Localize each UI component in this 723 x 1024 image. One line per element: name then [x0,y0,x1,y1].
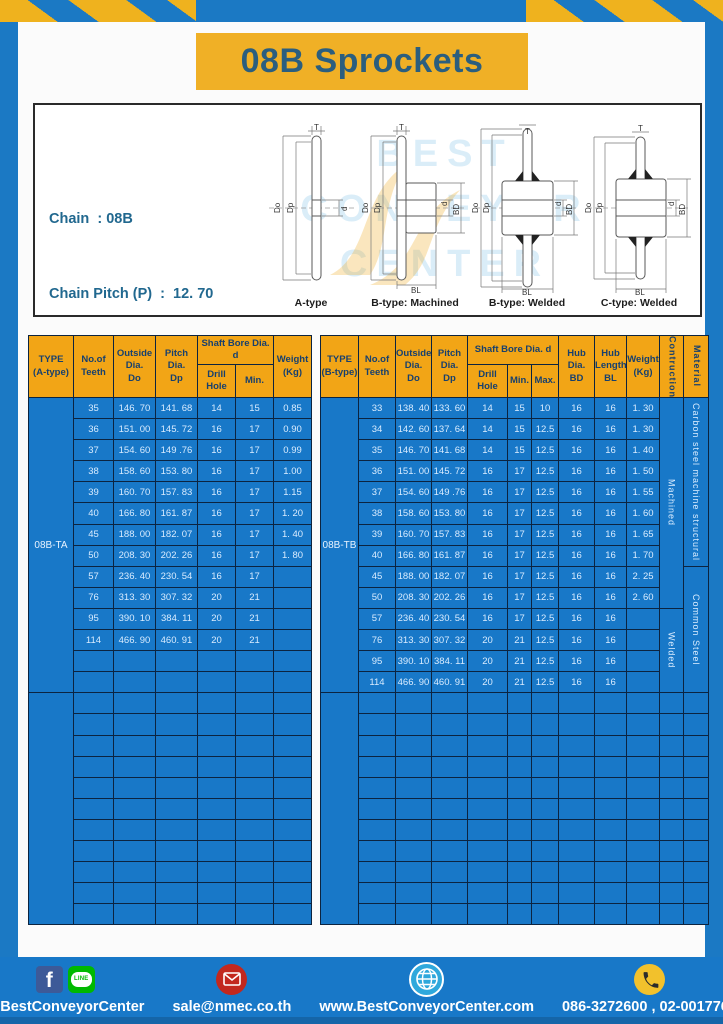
table-cell [114,777,156,798]
table-cell: 114 [74,630,114,651]
table-cell: 14 [468,398,508,419]
table-cell: 20 [198,608,236,629]
table-cell [198,819,236,840]
page-bottom-edge [0,1017,723,1024]
table-row [321,904,709,925]
col-header-min: Min. [508,365,532,398]
table-cell [432,735,468,756]
table-cell [595,756,627,777]
type-cell [321,693,359,925]
table-cell [660,777,684,798]
table-cell [627,756,660,777]
table-cell [156,651,198,672]
table-cell: 16 [198,461,236,482]
table-cell: 2. 25 [627,566,660,587]
table-cell [532,798,559,819]
table-cell [684,862,709,883]
table-cell: 17 [236,482,274,503]
table-cell: 182. 07 [432,566,468,587]
table-cell: 39 [359,524,396,545]
table-cell: 37 [359,482,396,503]
col-header-drill-hole: Drill Hole [468,365,508,398]
table-cell: 95 [359,651,396,672]
table-row: 57236. 40230. 54161712.51616Welded [321,608,709,629]
table-cell [627,798,660,819]
table-cell: 17 [236,545,274,566]
table-cell [156,777,198,798]
table-cell [595,777,627,798]
table-cell [396,714,432,735]
contact-footer: f LINE @BestConveyorCenter sale@nmec.co.… [0,957,723,1024]
table-cell [559,840,595,861]
table-row: 39160. 70157. 83161712.516161. 65 [321,524,709,545]
table-cell [156,714,198,735]
svg-text:BL: BL [635,288,645,295]
table-cell [74,819,114,840]
col-header-construction: Contruction [660,336,684,398]
table-cell [74,693,114,714]
table-cell [156,904,198,925]
table-cell [236,756,274,777]
table-cell [274,693,312,714]
table-cell: 1. 60 [627,503,660,524]
col-header-hub-dia: Hub Dia. BD [559,336,595,398]
table-cell [74,651,114,672]
sprocket-section-drawing: T Do Dp d BD BL [583,123,695,295]
table-cell [114,862,156,883]
table-cell: 16 [468,482,508,503]
table-cell: 16 [198,419,236,440]
table-cell: 460. 91 [156,630,198,651]
sprocket-section-drawing: T Do Dp d BD BL [359,123,471,295]
table-cell [627,735,660,756]
globe-icon [409,962,444,997]
table-row: 95390. 10384. 11202112.51616 [321,651,709,672]
table-cell: 158. 60 [114,461,156,482]
table-cell [114,883,156,904]
table-cell: 390. 10 [114,608,156,629]
table-cell [660,862,684,883]
table-cell: 17 [508,608,532,629]
svg-text:Do: Do [361,202,370,213]
table-cell [595,714,627,735]
table-cell: 16 [468,608,508,629]
table-cell [468,714,508,735]
svg-text:BL: BL [522,288,532,295]
table-cell: 14 [198,398,236,419]
table-cell [74,904,114,925]
table-cell [198,756,236,777]
mail-icon [216,964,247,995]
table-cell: 35 [74,398,114,419]
table-cell: 36 [359,461,396,482]
table-cell [359,714,396,735]
table-cell [236,862,274,883]
col-header-material: Material [684,336,709,398]
col-header-shaft-bore: Shaft Bore Dia. d [198,336,274,365]
sprocket-drawings: T Do Dp d A-type T [263,111,694,311]
table-cell [274,862,312,883]
table-cell: 153. 80 [432,503,468,524]
table-cell [274,840,312,861]
table-cell [627,840,660,861]
table-cell: 384. 11 [432,651,468,672]
table-cell [274,566,312,587]
title-banner: 08B Sprockets [196,33,528,90]
table-cell [559,862,595,883]
table-cell [595,819,627,840]
table-cell [532,777,559,798]
table-cell [559,904,595,925]
table-cell: 16 [595,482,627,503]
table-cell [432,714,468,735]
catalog-page: 08B Sprockets BEST CONVEYOR CENTER Chain… [0,0,723,1024]
table-cell: 12.5 [532,461,559,482]
table-cell: 12.5 [532,440,559,461]
table-cell: 38 [359,503,396,524]
table-cell [198,672,236,693]
table-row: 38158. 60153. 80161712.516161. 60 [321,503,709,524]
spec-line: Chain : 08B [49,207,291,232]
table-row [29,693,312,714]
table-cell: 14 [468,440,508,461]
table-cell [396,777,432,798]
table-row: 45188. 00182. 07161712.516162. 25Common … [321,566,709,587]
table-cell: 133. 60 [432,398,468,419]
table-cell: 12.5 [532,545,559,566]
table-cell: 15 [508,398,532,419]
table-cell [396,840,432,861]
table-cell [156,798,198,819]
table-cell: 16 [468,587,508,608]
footer-social: f LINE @BestConveyorCenter [0,961,154,1015]
table-cell: 45 [359,566,396,587]
table-cell [468,840,508,861]
table-cell [74,756,114,777]
table-cell: 12.5 [532,503,559,524]
table-cell: 157. 83 [432,524,468,545]
table-cell: 21 [236,630,274,651]
table-cell [432,777,468,798]
table-cell [684,840,709,861]
table-cell [627,819,660,840]
table-cell [114,904,156,925]
table-cell: 384. 11 [156,608,198,629]
table-cell [532,756,559,777]
table-cell: 154. 60 [396,482,432,503]
phone-numbers: 086-3272600 , 02-0017766 [562,999,723,1015]
table-cell: 16 [198,545,236,566]
table-cell [396,693,432,714]
table-cell [508,819,532,840]
svg-text:BL: BL [411,286,421,295]
table-cell [627,693,660,714]
table-row: 50208. 30202. 26161712.516162. 60 [321,587,709,608]
table-cell [684,693,709,714]
table-cell: Common Steel [684,566,709,693]
table-cell [468,756,508,777]
table-cell: 36 [74,419,114,440]
table-cell: 17 [508,566,532,587]
table-cell [684,777,709,798]
svg-text:Dp: Dp [482,202,491,213]
table-cell: 1. 30 [627,398,660,419]
table-cell [508,862,532,883]
table-cell: 1. 40 [274,524,312,545]
svg-text:Do: Do [584,202,593,213]
table-cell: 76 [359,630,396,651]
table-cell [236,672,274,693]
table-cell: 16 [595,630,627,651]
table-cell: 16 [198,482,236,503]
table-cell [156,735,198,756]
table-cell: 16 [595,419,627,440]
svg-text:T: T [525,127,530,136]
table-cell [74,777,114,798]
drawing-a-type: T Do Dp d A-type [263,111,359,311]
table-row: 08B-TA35146. 70141. 6814150.85 [29,398,312,419]
type-cell [29,693,74,925]
table-cell [236,819,274,840]
table-cell: 202. 26 [156,545,198,566]
table-cell [396,798,432,819]
hazard-stripes-right [526,0,723,22]
svg-text:d: d [440,202,449,206]
table-cell: 38 [74,461,114,482]
col-header-teeth: No.of Teeth [74,336,114,398]
table-cell [74,862,114,883]
table-cell: 236. 40 [114,566,156,587]
table-cell [627,672,660,693]
spec-box: BEST CONVEYOR CENTER Chain : 08B Chain P… [33,103,702,317]
table-cell: 76 [74,587,114,608]
table-cell: 0.85 [274,398,312,419]
table-cell [559,798,595,819]
table-cell: 161. 87 [432,545,468,566]
table-cell: 17 [508,503,532,524]
website-url: www.BestConveyorCenter.com [319,999,534,1015]
table-cell [359,735,396,756]
table-cell: 17 [236,524,274,545]
table-cell: 0.99 [274,440,312,461]
table-cell [660,819,684,840]
table-cell [74,714,114,735]
facebook-icon: f [36,966,63,993]
table-cell: 1.15 [274,482,312,503]
table-cell: 0.90 [274,419,312,440]
table-cell: 1. 70 [627,545,660,566]
table-cell [532,714,559,735]
table-row: 40166. 80161. 87161712.516161. 70 [321,545,709,566]
table-cell [274,630,312,651]
table-cell: 138. 40 [396,398,432,419]
drawing-caption: A-type [295,297,328,309]
table-cell [156,862,198,883]
table-cell [432,883,468,904]
table-cell: 230. 54 [432,608,468,629]
table-cell: 17 [508,587,532,608]
table-cell [627,904,660,925]
table-cell: 16 [559,545,595,566]
table-cell: 160. 70 [114,482,156,503]
table-cell: 17 [508,545,532,566]
table-cell: 17 [236,440,274,461]
table-cell: 21 [508,672,532,693]
svg-text:d: d [340,207,349,211]
table-cell [468,862,508,883]
table-cell: 161. 87 [156,503,198,524]
table-cell [274,904,312,925]
table-cell [236,693,274,714]
drawing-b-type-machined: T Do Dp d BD BL B-type: Machined [359,111,471,311]
table-cell: 16 [468,524,508,545]
table-cell: 1. 50 [627,461,660,482]
table-cell: 1. 30 [627,419,660,440]
sprocket-section-drawing: T Do Dp d BD BL [471,123,583,295]
table-cell: 12.5 [532,419,559,440]
col-header-min: Min. [236,365,274,398]
table-cell [156,756,198,777]
col-header-teeth: No.of Teeth [359,336,396,398]
table-cell [532,819,559,840]
table-cell: 16 [198,566,236,587]
type-cell: 08B-TA [29,398,74,693]
table-cell: 141. 68 [156,398,198,419]
table-cell: 16 [595,651,627,672]
svg-text:d: d [554,202,563,206]
table-cell: 154. 60 [114,440,156,461]
svg-text:Do: Do [471,202,480,213]
table-cell [559,714,595,735]
table-row: 37154. 60149 .76161712.516161. 55 [321,482,709,503]
table-cell: 151. 00 [114,419,156,440]
table-cell [396,756,432,777]
table-cell [236,798,274,819]
table-cell: 16 [559,630,595,651]
table-cell [274,587,312,608]
table-cell: 141. 68 [432,440,468,461]
table-cell [559,693,595,714]
table-cell: 1. 55 [627,482,660,503]
table-cell [432,840,468,861]
table-cell [432,693,468,714]
table-cell [198,862,236,883]
table-cell [114,651,156,672]
table-cell [468,904,508,925]
table-cell [198,651,236,672]
svg-text:BD: BD [565,204,574,215]
table-cell: 20 [468,672,508,693]
table-row [321,777,709,798]
table-cell [595,840,627,861]
table-cell [660,756,684,777]
table-cell: 16 [468,545,508,566]
table-cell: 145. 72 [156,419,198,440]
table-cell: Welded [660,608,684,692]
table-cell: 17 [236,419,274,440]
table-cell [274,672,312,693]
table-cell: 313. 30 [396,630,432,651]
table-cell [595,735,627,756]
svg-text:Dp: Dp [373,202,382,213]
table-row [321,735,709,756]
table-cell: 21 [236,587,274,608]
table-cell: 16 [559,482,595,503]
table-row: 34142. 60137. 64141512.516161. 30 [321,419,709,440]
table-cell [660,798,684,819]
table-cell: 16 [595,587,627,608]
table-cell: 20 [198,587,236,608]
table-cell [684,819,709,840]
svg-text:T: T [399,123,404,132]
table-cell: 95 [74,608,114,629]
b-type-spec-table: TYPE (B-type) No.of Teeth Outside Dia. D… [320,335,709,925]
table-cell [660,883,684,904]
table-cell [559,777,595,798]
table-cell [236,651,274,672]
table-cell: 307. 32 [156,587,198,608]
table-cell: 50 [359,587,396,608]
table-cell [114,672,156,693]
table-row: 36151. 00145. 72161712.516161. 50 [321,461,709,482]
table-row: 114466. 90460. 91202112.51616 [321,672,709,693]
table-cell [508,840,532,861]
line-icon: LINE [68,966,95,993]
table-cell: 16 [559,672,595,693]
table-cell: 160. 70 [396,524,432,545]
table-row [321,840,709,861]
table-cell [198,714,236,735]
table-cell: 16 [595,440,627,461]
svg-text:Dp: Dp [286,202,295,213]
col-header-outside-dia: Outside Dia. Do [396,336,432,398]
table-cell [468,693,508,714]
table-cell [274,756,312,777]
table-cell: 16 [595,566,627,587]
table-cell [198,777,236,798]
table-cell: 39 [74,482,114,503]
table-cell [432,819,468,840]
table-cell [236,735,274,756]
table-cell: 12.5 [532,630,559,651]
table-cell [508,735,532,756]
table-cell: 114 [359,672,396,693]
table-cell: 16 [559,608,595,629]
table-cell: 146. 70 [114,398,156,419]
table-row [321,819,709,840]
table-cell: 17 [508,482,532,503]
table-row: 35146. 70141. 68141512.516161. 40 [321,440,709,461]
table-cell [684,735,709,756]
table-cell [359,756,396,777]
table-cell [432,756,468,777]
col-header-pitch-dia: Pitch Dia. Dp [156,336,198,398]
table-cell: 21 [236,608,274,629]
table-cell: 390. 10 [396,651,432,672]
table-cell [114,840,156,861]
table-cell [359,819,396,840]
col-header-weight: Weight (Kg) [274,336,312,398]
table-cell [396,819,432,840]
table-cell: 17 [508,524,532,545]
table-cell [595,798,627,819]
footer-website: www.BestConveyorCenter.com [309,961,544,1015]
table-cell: 460. 91 [432,672,468,693]
table-cell [559,883,595,904]
table-cell [274,883,312,904]
table-cell: 21 [508,651,532,672]
table-cell: 16 [595,398,627,419]
